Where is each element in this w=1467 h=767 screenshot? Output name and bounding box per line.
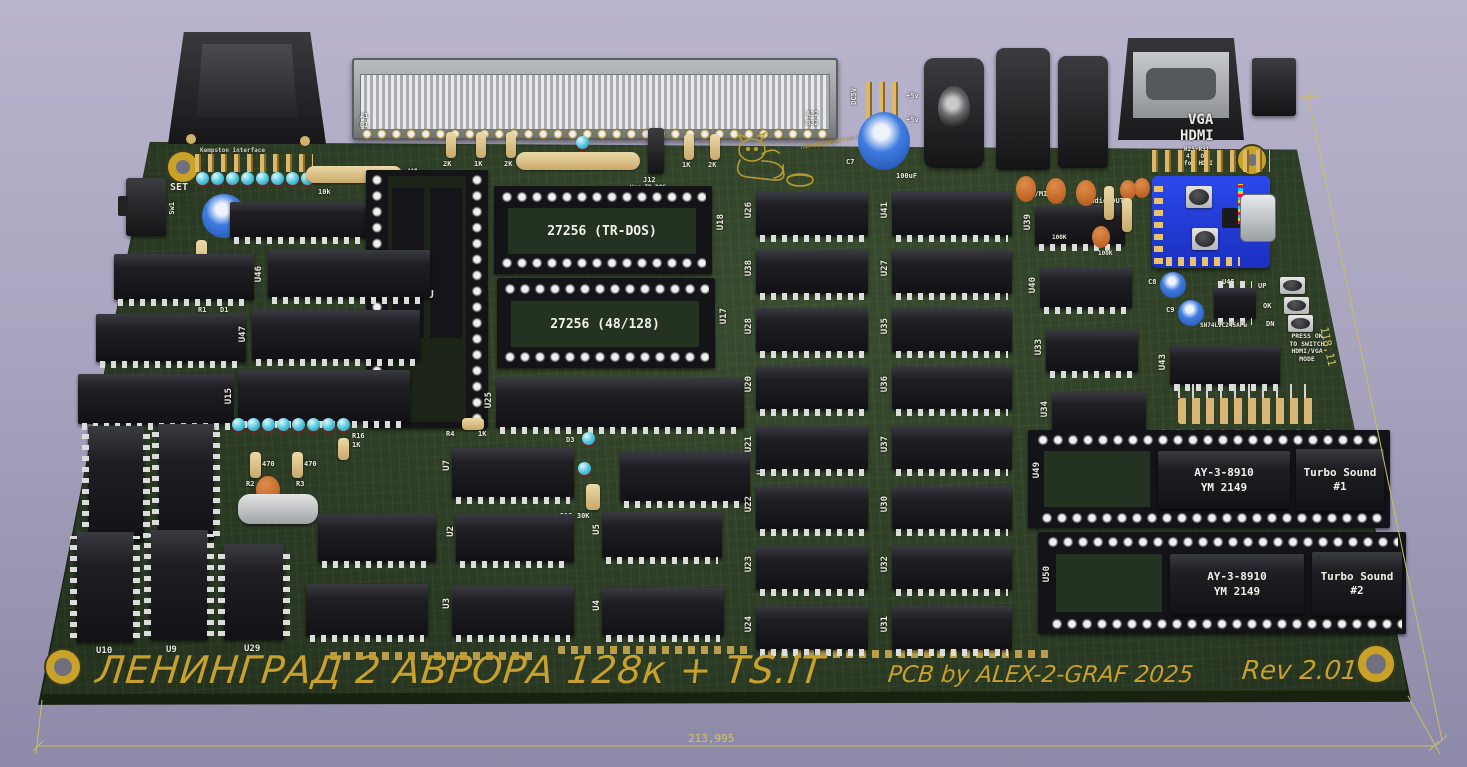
turbo-sound-num: #2	[1350, 584, 1363, 598]
r4-label: R4	[446, 430, 454, 438]
ic-chip	[318, 514, 436, 562]
ic-u32	[892, 546, 1012, 590]
u27-label: U27	[880, 260, 890, 276]
up-button-label: UP	[1258, 282, 1266, 290]
ic-u10	[76, 532, 134, 642]
ic-u36	[892, 366, 1012, 410]
ic-u45	[1214, 287, 1256, 319]
u18-label: U18	[716, 214, 726, 230]
resistor-value: 1K	[682, 161, 690, 169]
ok-button-label: OK	[1263, 302, 1271, 310]
resistor-value: 2K	[504, 160, 512, 168]
ic-u35	[892, 308, 1012, 352]
ic-u34	[1052, 392, 1146, 434]
ic-u5	[602, 512, 722, 558]
resistor-value: 100K	[1098, 250, 1112, 257]
ic-u30	[892, 486, 1012, 530]
ic-chip	[268, 250, 430, 298]
ic-u41	[892, 192, 1012, 236]
ic-chip	[158, 424, 214, 540]
ic-u23	[756, 546, 868, 590]
ic-chip	[78, 374, 234, 424]
u30-label: U30	[880, 496, 890, 512]
u40-label: U40	[1028, 277, 1038, 293]
ic-u29	[224, 544, 284, 640]
dc-barrel-jack	[924, 58, 984, 168]
u4-label: U4	[592, 600, 602, 611]
ic-u7	[452, 448, 574, 498]
resistor	[1122, 198, 1132, 232]
set-label: SET	[170, 182, 188, 193]
u2-label: U2	[446, 526, 456, 537]
ic-u1	[230, 202, 377, 238]
u50-label: U50	[1042, 566, 1052, 582]
resistor	[710, 134, 720, 160]
joystick-db9-connector	[168, 32, 326, 144]
led-row-2	[232, 418, 350, 431]
u31-label: U31	[880, 616, 890, 632]
ic-u24	[756, 606, 868, 650]
resistor-r16	[338, 438, 349, 460]
turbo-sound-num: #1	[1333, 480, 1346, 494]
ok-button[interactable]	[1284, 297, 1309, 314]
capacitor	[1092, 226, 1110, 248]
resistor-r12	[586, 484, 600, 510]
u49-label: U49	[1032, 462, 1042, 478]
u39-label: U39	[1023, 214, 1033, 230]
r3-label: R3	[296, 480, 304, 488]
rear-connector	[1252, 58, 1296, 116]
u43-label: U43	[1158, 354, 1168, 370]
u21-label: U21	[744, 436, 754, 452]
jumper-j12-label: J12	[643, 176, 656, 184]
c7-value: 100uF	[896, 172, 917, 180]
capacitor	[1120, 180, 1136, 200]
resistor-network	[516, 152, 640, 170]
board-credit: PCB by ALEX-2-GRAF 2025	[887, 662, 1195, 688]
r1-label: R1	[198, 306, 206, 314]
ic-u33	[1046, 330, 1138, 372]
u46-label: U46	[254, 266, 264, 282]
r16-value: 1K	[352, 441, 360, 449]
edge-label-b32: B32	[806, 119, 819, 127]
ic-u20	[756, 366, 868, 410]
resistor-r3	[292, 452, 303, 478]
led-row-1	[196, 172, 314, 185]
u36-label: U36	[880, 376, 890, 392]
width-dimension: 213,995	[688, 732, 734, 745]
ic-u22	[756, 486, 868, 530]
u37-label: U37	[880, 436, 890, 452]
resistor	[446, 132, 456, 158]
ic-u43	[1170, 345, 1280, 385]
up-button[interactable]	[1280, 277, 1305, 294]
capacitor	[1076, 180, 1096, 206]
ic-u27	[892, 250, 1012, 294]
resistor-value: 2K	[443, 160, 451, 168]
dn-button[interactable]	[1288, 315, 1313, 332]
rp2040-usb-module	[1152, 176, 1270, 268]
rom-socket-trdos: 27256 (TR-DOS)	[494, 186, 712, 274]
resistor-r2	[250, 452, 261, 478]
u28-label: U28	[744, 318, 754, 334]
resistor-ladder	[1178, 398, 1318, 424]
u7-label: U7	[442, 460, 452, 471]
audio-out-jack	[1058, 56, 1108, 168]
u38-label: U38	[744, 260, 754, 276]
resistor-r4	[462, 418, 484, 430]
ic-u21	[756, 426, 868, 470]
u41-label: U41	[880, 202, 890, 218]
ym-chip-label: YM 2149	[1214, 584, 1260, 599]
resistor-value: 1K	[474, 160, 482, 168]
u47-label: U47	[238, 326, 248, 342]
mount-hole-bottom-right	[1358, 646, 1394, 682]
dc5v-label: DC5V	[850, 88, 858, 105]
ic-u40	[1040, 268, 1132, 308]
u26-label: U26	[744, 202, 754, 218]
ic-u2	[456, 514, 574, 562]
ic-chip	[96, 314, 246, 362]
resistor	[476, 132, 486, 158]
ic-u9	[150, 530, 208, 640]
ic-u3	[452, 586, 574, 636]
capacitor	[1046, 178, 1066, 204]
usb-c-connector[interactable]	[1240, 194, 1276, 242]
u23-label: U23	[744, 556, 754, 572]
c9-label: C9	[1166, 306, 1174, 314]
ic-u25	[496, 378, 744, 428]
rn2-value: 10k	[318, 188, 331, 196]
led	[576, 136, 589, 149]
ic-chip	[238, 370, 410, 422]
capacitor	[1016, 176, 1036, 202]
u35-label: U35	[880, 318, 890, 334]
resistor	[506, 132, 516, 158]
u32-label: U32	[880, 556, 890, 572]
ic-chip	[252, 310, 420, 360]
r4-value: 1K	[478, 430, 486, 438]
kempston-header	[195, 154, 313, 172]
edge-label-b1: B1	[360, 121, 368, 129]
vga-connector	[1118, 38, 1244, 140]
plus5v-label: +5v	[906, 116, 919, 124]
vga-label: VGA	[1188, 112, 1213, 128]
ay-chip-label: AY-3-8910	[1207, 569, 1267, 584]
sw1-label: Sw1	[168, 202, 176, 215]
plus5v-label: +5v	[906, 92, 919, 100]
c7-label: C7	[846, 158, 854, 166]
led-d3	[582, 432, 595, 445]
jumper-wires	[1178, 384, 1308, 398]
u17-label: U17	[719, 308, 729, 324]
r2-value: 470	[262, 460, 275, 468]
capacitor-c7	[858, 112, 910, 170]
u3-label: U3	[442, 598, 452, 609]
led-d2	[578, 462, 591, 475]
ic-chip	[306, 584, 428, 636]
resistor-value: 100K	[1052, 234, 1066, 241]
ic-u31	[892, 606, 1012, 650]
board-revision: Rev 2.01	[1240, 656, 1359, 686]
r2-label: R2	[246, 480, 254, 488]
d3-label: D3	[566, 436, 574, 444]
ic-u37	[892, 426, 1012, 470]
edge-label-a1: A1	[360, 112, 368, 120]
u20-label: U20	[744, 376, 754, 392]
c8-label: C8	[1148, 278, 1156, 286]
ear-mic-jack	[996, 48, 1050, 170]
turbo-sound-socket-1: AY-3-8910 YM 2149 Turbo Sound #1	[1028, 430, 1390, 528]
r16-label: R16	[352, 432, 365, 440]
ic-chip	[114, 254, 254, 300]
ic-chip	[88, 426, 144, 542]
turbo-sound-label: Turbo Sound	[1321, 570, 1394, 584]
db9-screw-post	[300, 136, 310, 146]
turbo-sound-socket-2: AY-3-8910 YM 2149 Turbo Sound #2	[1038, 532, 1406, 634]
mount-hole-top-left	[168, 152, 198, 182]
u22-label: U22	[744, 496, 754, 512]
r3-value: 470	[304, 460, 317, 468]
sn74-label: SN74LVC245APw	[1200, 322, 1247, 329]
d1-label: D1	[220, 306, 228, 314]
ic-u26	[756, 192, 868, 236]
mount-hole-bottom-left	[46, 650, 80, 684]
rom-socket-48-128: 27256 (48/128)	[497, 278, 715, 368]
module-boot-button[interactable]	[1186, 186, 1212, 208]
rom2-text: 27256 (48/128)	[550, 317, 660, 332]
rom1-text: 27256 (TR-DOS)	[547, 224, 657, 239]
resistor-value: 2K	[708, 161, 716, 169]
db9-screw-post	[186, 134, 196, 144]
hdmi-label: HDMI	[1180, 128, 1214, 144]
u25-label: U25	[484, 392, 494, 408]
ic-u28	[756, 308, 868, 352]
turbo-sound-label: Turbo Sound	[1304, 466, 1377, 480]
u24-label: U24	[744, 616, 754, 632]
ic-u38	[756, 250, 868, 294]
capacitor-c8	[1160, 272, 1186, 298]
reset-switch[interactable]	[126, 178, 166, 236]
u33-label: U33	[1034, 339, 1044, 355]
u15-label: U15	[224, 388, 234, 404]
resistor	[684, 134, 694, 160]
pcb-3d-viewer: A1 B1 A32 B32 2K 1K 2K 1K 2K J12 Ver-TR-…	[0, 0, 1467, 767]
dn-button-label: DN	[1266, 320, 1274, 328]
ay-chip-label: AY-3-8910	[1194, 465, 1254, 480]
edge-label-a32: A32	[806, 110, 819, 118]
capacitor	[1134, 178, 1150, 198]
module-pin-header	[1152, 150, 1270, 172]
u34-label: U34	[1040, 401, 1050, 417]
kempston-label: Kempston interface	[200, 147, 265, 154]
resistor	[1104, 186, 1114, 220]
module-reset-button[interactable]	[1192, 228, 1218, 250]
board-title: ЛЕНИНГРАД 2 АВРОРА 128к + TS.IT	[94, 648, 827, 692]
ym-chip-label: YM 2149	[1201, 480, 1247, 495]
ic-u8	[620, 452, 750, 502]
ic-u4	[602, 588, 724, 636]
crystal-oscillator	[238, 494, 318, 524]
u5-label: U5	[592, 524, 602, 535]
jumper-j12	[648, 128, 664, 174]
